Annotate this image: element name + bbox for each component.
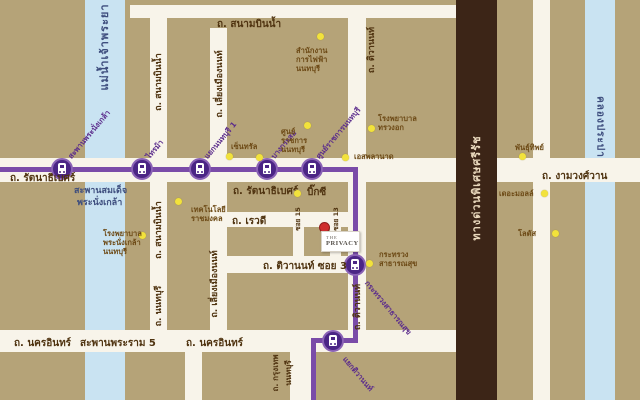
train-icon — [138, 163, 146, 174]
road-label-krungthep-line1: ถ. กรุงเทพ — [269, 355, 282, 392]
road-label-nakhon-in-west: ถ. นครอินทร์ — [14, 336, 71, 351]
landmark-dot-esplanade — [342, 154, 349, 161]
canal-label: คลองประปา — [593, 96, 608, 158]
train-icon — [263, 163, 271, 174]
road-label-rattanathibet-mid: ถ. รัตนาธิเบศร์ — [233, 184, 298, 199]
landmark-dot-chest-hospital — [368, 125, 375, 132]
mrt-purple-line-south — [311, 338, 316, 400]
landmark-dot-central-a — [226, 153, 233, 160]
train-icon — [329, 335, 337, 346]
landmark-text: เทคโนโลยี — [191, 205, 226, 214]
road-label-liang-mueang-north: ถ. เลี่ยงเมืองนนท์ — [212, 50, 226, 117]
landmark-big-c: บิ๊กซี — [307, 187, 326, 199]
logo-text: THE PRIVACY — [326, 236, 359, 247]
bridge-label-rama5: สะพานพระราม 5 — [80, 336, 156, 351]
station-label: กระทรวงสาธารณสุข — [361, 278, 414, 338]
road-label-rattanathibet-west: ถ. รัตนาธิเบศร์ — [10, 171, 75, 186]
mrt-station-sai-ma — [131, 158, 153, 180]
landmark-central: เซ็นทรัล — [231, 142, 257, 151]
landmark-text: เซ็นทรัล — [231, 142, 257, 151]
mrt-station-nonthaburi-civic-center — [301, 158, 323, 180]
landmark-text: สาธารณสุข — [379, 259, 417, 268]
road-south-vertical — [185, 352, 202, 400]
landmark-lotus: โลตัส — [518, 229, 536, 238]
landmark-text: สำนักงาน — [296, 46, 327, 55]
road-label-nakhon-in-east: ถ. นครอินทร์ — [186, 336, 243, 351]
landmark-esplanade: เอสพลานาด — [354, 152, 394, 161]
mrt-station-yaek-nonthaburi-1 — [189, 158, 211, 180]
landmark-ministry-public-health: กระทรวง สาธารณสุข — [379, 250, 417, 268]
the-privacy-logo: THE PRIVACY — [321, 231, 360, 252]
landmark-dot-rajamangala — [175, 198, 182, 205]
mrt-station-bang-krasor — [256, 158, 278, 180]
landmark-text: ราชมงคล — [191, 214, 226, 223]
road-label-tiwanon-south: ถ. ติวานนท์ — [350, 284, 364, 330]
road-label-krungthep-line2: นนทบุรี — [282, 355, 295, 392]
road-label-rewadee: ถ. เรวดี — [232, 214, 266, 229]
road-label-liang-mueang-south: ถ. เลี่ยงเมืองนนท์ — [207, 250, 221, 317]
road-label-krungthep-nonthaburi: ถ. กรุงเทพ นนทบุรี — [269, 355, 295, 392]
landmark-text: โรงพยาบาล — [103, 229, 142, 238]
landmark-text: นนทบุรี — [296, 64, 327, 73]
landmark-text: โลตัส — [518, 229, 536, 238]
mrt-station-yaek-tiwanon — [322, 330, 344, 352]
logo-name: PRIVACY — [326, 241, 359, 248]
landmark-dot-pantip — [519, 153, 526, 160]
map-canvas: ทางด่วนพิเศษศรีรัช สะพานพระนั่งเกล้า ไทร… — [0, 0, 640, 400]
road-label-tiwanon-north: ถ. ติวานนท์ — [364, 27, 378, 73]
landmark-text: โรงพยาบาล — [378, 114, 417, 123]
landmark-text: เอสพลานาด — [354, 152, 394, 161]
river-label: แม่น้ำเจ้าพระยา — [95, 3, 113, 90]
landmark-dot-lotus — [552, 230, 559, 237]
landmark-text: นนทบุรี — [103, 247, 142, 256]
road-label-soi-b: ซอย 13 — [331, 207, 341, 230]
landmark-text: ราชการ — [281, 136, 307, 145]
road-label-ngamwongwan: ถ. งามวงศ์วาน — [542, 169, 607, 184]
landmark-text: นนทบุรี — [281, 145, 307, 154]
landmark-government-center: ศูนย์ ราชการ นนทบุรี — [281, 127, 307, 154]
landmark-pantip: พันธุ์ทิพย์ — [515, 143, 544, 152]
road-label-sanambinnam-vertical-south: ถ. สนามบินน้ำ — [151, 201, 165, 259]
landmark-dot-ministry-public-health — [366, 260, 373, 267]
road-label-tiwanon-soi-3: ถ. ติวานนท์ ซอย 3 — [263, 259, 347, 274]
landmark-chest-disease-hospital: โรงพยาบาล ทรวงอก — [378, 114, 417, 132]
landmark-dot-central-b — [256, 154, 263, 161]
train-icon — [351, 259, 359, 270]
train-icon — [196, 163, 204, 174]
road-label-sanambinnam: ถ. สนามบินน้ำ — [217, 17, 281, 32]
landmark-phra-nangklao-hospital: โรงพยาบาล พระนั่งเกล้า นนทบุรี — [103, 229, 142, 256]
landmark-text: กระทรวง — [379, 250, 417, 259]
landmark-dot-the-mall — [541, 190, 548, 197]
road-right-vertical — [533, 0, 550, 400]
road-label-soi-a: ซอย 15 — [293, 207, 303, 230]
road-label-nonthaburi: ถ. นนทบุรี — [151, 286, 165, 327]
landmark-text: เดอะมอลล์ — [499, 189, 534, 198]
prapa-canal — [585, 0, 615, 400]
mrt-station-ministry-of-public-health — [344, 254, 366, 276]
landmark-text: พระนั่งเกล้า — [103, 238, 142, 247]
road-label-sanambinnam-vertical: ถ. สนามบินน้ำ — [151, 53, 165, 111]
expressway-label: ทางด่วนพิเศษศรีรัช — [467, 135, 485, 240]
landmark-dot-big-c — [294, 190, 301, 197]
train-icon — [308, 163, 316, 174]
landmark-electricity-office: สำนักงาน การไฟฟ้า นนทบุรี — [296, 46, 327, 73]
landmark-dot-electricity-office — [317, 33, 324, 40]
road-sanambinnam-top — [130, 5, 458, 18]
station-label: แยกติวานนท์ — [339, 354, 375, 394]
landmark-rajamangala-technology: เทคโนโลยี ราชมงคล — [191, 205, 226, 223]
landmark-the-mall: เดอะมอลล์ — [499, 189, 534, 198]
landmark-text: ศูนย์ — [281, 127, 307, 136]
landmark-text: พันธุ์ทิพย์ — [515, 143, 544, 152]
bridge-label-phra-nangklao-line2: พระนั่งเกล้า — [77, 195, 122, 209]
landmark-text: ทรวงอก — [378, 123, 417, 132]
landmark-text: การไฟฟ้า — [296, 55, 327, 64]
landmark-text: บิ๊กซี — [307, 187, 326, 199]
